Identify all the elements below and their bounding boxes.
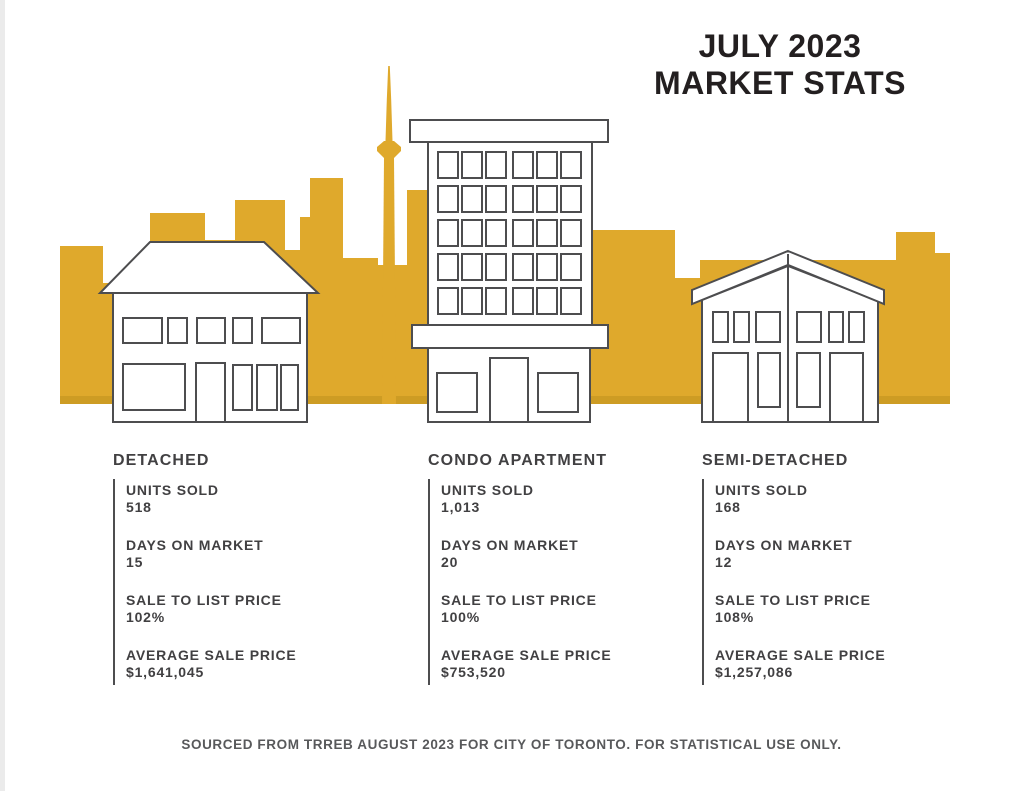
stats-column-semi-detached: SEMI-DETACHED UNITS SOLD 168 DAYS ON MAR… — [702, 452, 977, 685]
door-icon — [490, 358, 528, 422]
window-icon — [849, 312, 864, 342]
stat-label: UNITS SOLD — [126, 482, 388, 499]
stat-label: UNITS SOLD — [715, 482, 977, 499]
category-header: CONDO APARTMENT — [428, 452, 703, 470]
stat-group: DAYS ON MARKET 20 — [441, 537, 703, 571]
window-icon — [437, 373, 477, 412]
stat-value: $1,641,045 — [126, 664, 388, 681]
stat-group: AVERAGE SALE PRICE $1,641,045 — [126, 647, 388, 681]
condo-building-illustration — [410, 120, 608, 422]
stat-value: 12 — [715, 554, 977, 571]
stat-value: $1,257,086 — [715, 664, 977, 681]
stat-group: AVERAGE SALE PRICE $1,257,086 — [715, 647, 977, 681]
window-icon — [756, 312, 780, 342]
window-icon — [197, 318, 225, 343]
stat-value: 518 — [126, 499, 388, 516]
stat-label: UNITS SOLD — [441, 482, 703, 499]
condo-roof-cap — [410, 120, 608, 142]
window-icon — [123, 364, 185, 410]
stat-label: DAYS ON MARKET — [126, 537, 388, 554]
window-icon — [281, 365, 298, 410]
window-icon — [262, 318, 300, 343]
window-icon — [829, 312, 843, 342]
window-icon — [168, 318, 187, 343]
door-icon — [196, 363, 225, 422]
stats-column-condo-apartment: CONDO APARTMENT UNITS SOLD 1,013 DAYS ON… — [428, 452, 703, 685]
stat-label: SALE TO LIST PRICE — [126, 592, 388, 609]
stat-list: UNITS SOLD 1,013 DAYS ON MARKET 20 SALE … — [428, 479, 703, 685]
source-disclaimer: SOURCED FROM TRREB AUGUST 2023 FOR CITY … — [0, 737, 1023, 752]
window-icon — [123, 318, 162, 343]
window-icon — [797, 353, 820, 407]
stat-value: $753,520 — [441, 664, 703, 681]
category-header: DETACHED — [113, 452, 388, 470]
stat-label: AVERAGE SALE PRICE — [126, 647, 388, 664]
stat-group: AVERAGE SALE PRICE $753,520 — [441, 647, 703, 681]
stat-group: UNITS SOLD 168 — [715, 482, 977, 516]
stat-group: DAYS ON MARKET 15 — [126, 537, 388, 571]
detached-house-illustration — [100, 242, 318, 422]
stat-value: 168 — [715, 499, 977, 516]
stat-label: DAYS ON MARKET — [441, 537, 703, 554]
stat-value: 20 — [441, 554, 703, 571]
stat-group: SALE TO LIST PRICE 100% — [441, 592, 703, 626]
window-icon — [233, 365, 252, 410]
stat-value: 100% — [441, 609, 703, 626]
stat-group: UNITS SOLD 1,013 — [441, 482, 703, 516]
stat-list: UNITS SOLD 168 DAYS ON MARKET 12 SALE TO… — [702, 479, 977, 685]
infographic-page: JULY 2023 MARKET STATS — [0, 0, 1023, 791]
stat-value: 1,013 — [441, 499, 703, 516]
window-icon — [257, 365, 277, 410]
stat-value: 15 — [126, 554, 388, 571]
door-icon — [713, 353, 748, 422]
condo-mid-band — [412, 325, 608, 348]
stat-group: UNITS SOLD 518 — [126, 482, 388, 516]
stat-label: DAYS ON MARKET — [715, 537, 977, 554]
window-icon — [233, 318, 252, 343]
window-icon — [713, 312, 728, 342]
stat-value: 102% — [126, 609, 388, 626]
window-icon — [734, 312, 749, 342]
window-icon — [758, 353, 780, 407]
stat-list: UNITS SOLD 518 DAYS ON MARKET 15 SALE TO… — [113, 479, 388, 685]
window-icon — [538, 373, 578, 412]
stat-label: AVERAGE SALE PRICE — [441, 647, 703, 664]
stat-group: SALE TO LIST PRICE 108% — [715, 592, 977, 626]
detached-roof — [100, 242, 318, 293]
stat-value: 108% — [715, 609, 977, 626]
stat-group: DAYS ON MARKET 12 — [715, 537, 977, 571]
door-icon — [830, 353, 863, 422]
category-header: SEMI-DETACHED — [702, 452, 977, 470]
stat-group: SALE TO LIST PRICE 102% — [126, 592, 388, 626]
stat-label: SALE TO LIST PRICE — [441, 592, 703, 609]
window-icon — [797, 312, 821, 342]
stat-label: SALE TO LIST PRICE — [715, 592, 977, 609]
stats-column-detached: DETACHED UNITS SOLD 518 DAYS ON MARKET 1… — [113, 452, 388, 685]
stat-label: AVERAGE SALE PRICE — [715, 647, 977, 664]
